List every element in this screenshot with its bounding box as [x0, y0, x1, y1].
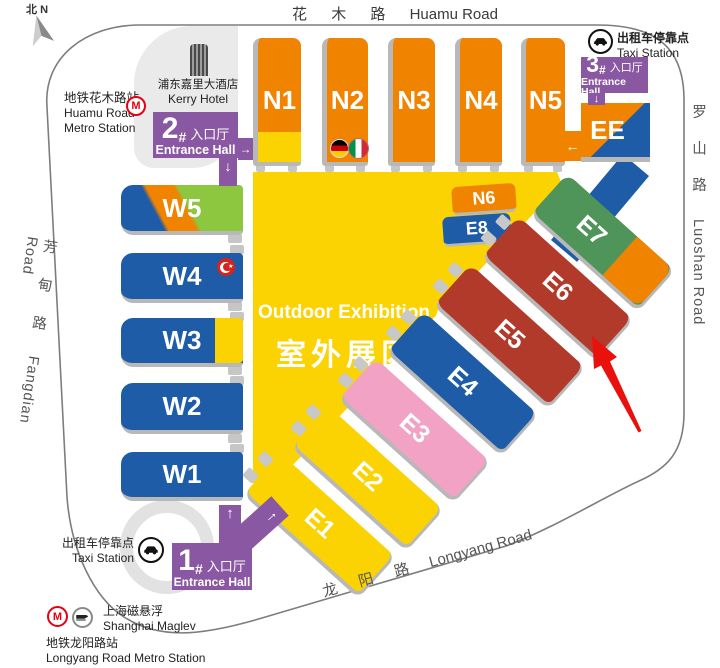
down-arrow: ↓: [594, 93, 600, 105]
road-label-huamu: 花 木 路 Huamu Road: [270, 3, 520, 24]
longyang-metro-label: 地铁龙阳路站 Longyang Road Metro Station: [46, 636, 205, 665]
up-arrow: ↑: [226, 505, 234, 522]
entrance-3-number: 3: [586, 53, 599, 76]
kerry-en: Kerry Hotel: [150, 92, 246, 107]
hall-e5-label: E5: [489, 313, 531, 355]
hall-w4-label: W4: [163, 261, 202, 292]
hall-w2: W2: [121, 383, 243, 434]
hall-ee-label: EE: [590, 115, 625, 146]
hall-n5-label: N5: [529, 85, 562, 116]
train-glyph: [75, 610, 90, 625]
metro-logo-m: M: [53, 611, 62, 623]
hall-n3: N3: [388, 38, 435, 166]
hall-n1-label: N1: [263, 85, 296, 116]
car-glyph: [592, 33, 609, 50]
taxi-ne-icon: [588, 29, 613, 54]
italy-flag-icon: [348, 138, 369, 159]
connector-tab: [228, 366, 242, 375]
entrance-hall-1: 1# 入口厅 Entrance Hall: [172, 543, 252, 590]
hall-n5: N5: [521, 38, 565, 166]
luoshan-en: Luoshan Road: [690, 219, 706, 325]
connector-tab: [228, 234, 242, 243]
entrance-1-hash: #: [195, 562, 203, 576]
arrow-to-n5: ←: [566, 138, 580, 154]
luoshan-cn: 罗 山 路: [690, 104, 706, 201]
hall-e2-label: E2: [347, 455, 389, 497]
connector-tab: [228, 302, 242, 311]
maglev-cn: 上海磁悬浮: [103, 604, 196, 619]
expo-site-map: 北 N 花 木 路 Huamu Road 罗 山 路 Luoshan Road …: [0, 0, 720, 668]
turkey-flag-icon: ★: [217, 258, 235, 276]
hall-w1: W1: [121, 452, 243, 501]
hall-w5: W5: [121, 185, 243, 235]
hall-w3: W3: [121, 318, 243, 367]
kerry-cn: 浦东嘉里大酒店: [150, 78, 246, 92]
taxi-ne-cn: 出租车停靠点: [617, 31, 689, 46]
taxi-ne-label: 出租车停靠点 Taxi Station: [617, 31, 689, 60]
entrance-3-stub: ↓: [588, 93, 605, 105]
kerry-hotel-icon: [190, 44, 208, 76]
flag-star: ★: [228, 263, 233, 270]
right-arrow: →: [240, 142, 252, 156]
taxi-sw-icon: [138, 537, 164, 563]
hall-w3-label: W3: [163, 325, 202, 356]
entrance-1-number: 1: [178, 546, 195, 576]
hall-n4: N4: [455, 38, 502, 166]
taxi-sw-cn: 出租车停靠点: [28, 536, 134, 551]
hall-n6: N6: [451, 183, 517, 216]
metro-logo-icon-south: M: [47, 606, 68, 627]
hall-w3-yellow-section: [215, 318, 243, 363]
entrance-3-hash: #: [599, 64, 606, 76]
huamu-metro-en1: Huamu Road: [64, 106, 184, 121]
entrance-3-cn: 入口厅: [610, 63, 643, 76]
entrance-2-cn: 入口厅: [190, 128, 229, 144]
entrance-1-en: Entrance Hall: [174, 576, 251, 588]
huamu-cn: 花 木 路: [292, 6, 395, 23]
hall-e7-label: E7: [571, 209, 613, 251]
taxi-ne-en: Taxi Station: [617, 46, 689, 61]
hall-ee: EE: [581, 103, 650, 162]
car-glyph: [142, 541, 160, 559]
maglev-label: 上海磁悬浮 Shanghai Maglev: [103, 604, 196, 633]
hall-n6-label: N6: [472, 187, 496, 210]
entrance-2-en: Entrance Hall: [156, 144, 236, 157]
down-arrow: ↓: [225, 158, 232, 174]
hall-e3-label: E3: [394, 407, 436, 449]
entrance-2-stub-down: ↓: [219, 158, 237, 186]
hall-n1-yellow-section: [258, 132, 301, 162]
hall-w2-label: W2: [163, 391, 202, 422]
hall-n1: N1: [253, 38, 301, 166]
hall-e1-label: E1: [299, 502, 341, 544]
compass-en: N: [40, 4, 48, 16]
huamu-en: Huamu Road: [410, 6, 498, 23]
compass-label: 北 N: [26, 1, 48, 17]
road-label-luoshan: 罗 山 路 Luoshan Road: [688, 104, 709, 344]
hall-w1-label: W1: [163, 459, 202, 490]
entrance-1-tower: ↑: [219, 505, 241, 545]
entrance-2-stub-right: →: [238, 138, 253, 160]
entrance-hall-3: 3# 入口厅 Entrance Hall: [581, 57, 648, 93]
connector-tab: [228, 434, 242, 443]
entrance-1-cn: 入口厅: [207, 560, 246, 576]
up-right-arrow: →: [259, 504, 282, 527]
taxi-sw-en: Taxi Station: [28, 551, 134, 566]
compass-cn: 北: [26, 4, 37, 16]
taxi-sw-label: 出租车停靠点 Taxi Station: [28, 536, 134, 565]
hall-n2: N2: [322, 38, 368, 166]
longyang-metro-cn: 地铁龙阳路站: [46, 636, 205, 651]
hall-w5-label: W5: [163, 193, 202, 224]
huamu-metro-en2: Metro Station: [64, 121, 184, 136]
germany-flag-icon: [330, 139, 349, 158]
longyang-metro-en: Longyang Road Metro Station: [46, 651, 205, 666]
maglev-train-icon: [72, 607, 93, 628]
metro-logo-icon: M: [126, 96, 146, 116]
compass-needle: [26, 13, 54, 46]
hall-n3-label: N3: [397, 85, 430, 116]
hall-n2-label: N2: [331, 85, 364, 116]
hall-e6-label: E6: [537, 265, 579, 307]
hall-w4: W4 ★: [121, 253, 243, 303]
kerry-hotel-label: 浦东嘉里大酒店 Kerry Hotel: [150, 78, 246, 107]
maglev-en: Shanghai Maglev: [103, 619, 196, 634]
corridor-n5-ee: ←: [563, 131, 582, 161]
hall-e4-label: E4: [442, 360, 484, 402]
metro-logo-m: M: [131, 100, 140, 112]
hall-n4-label: N4: [464, 85, 497, 116]
